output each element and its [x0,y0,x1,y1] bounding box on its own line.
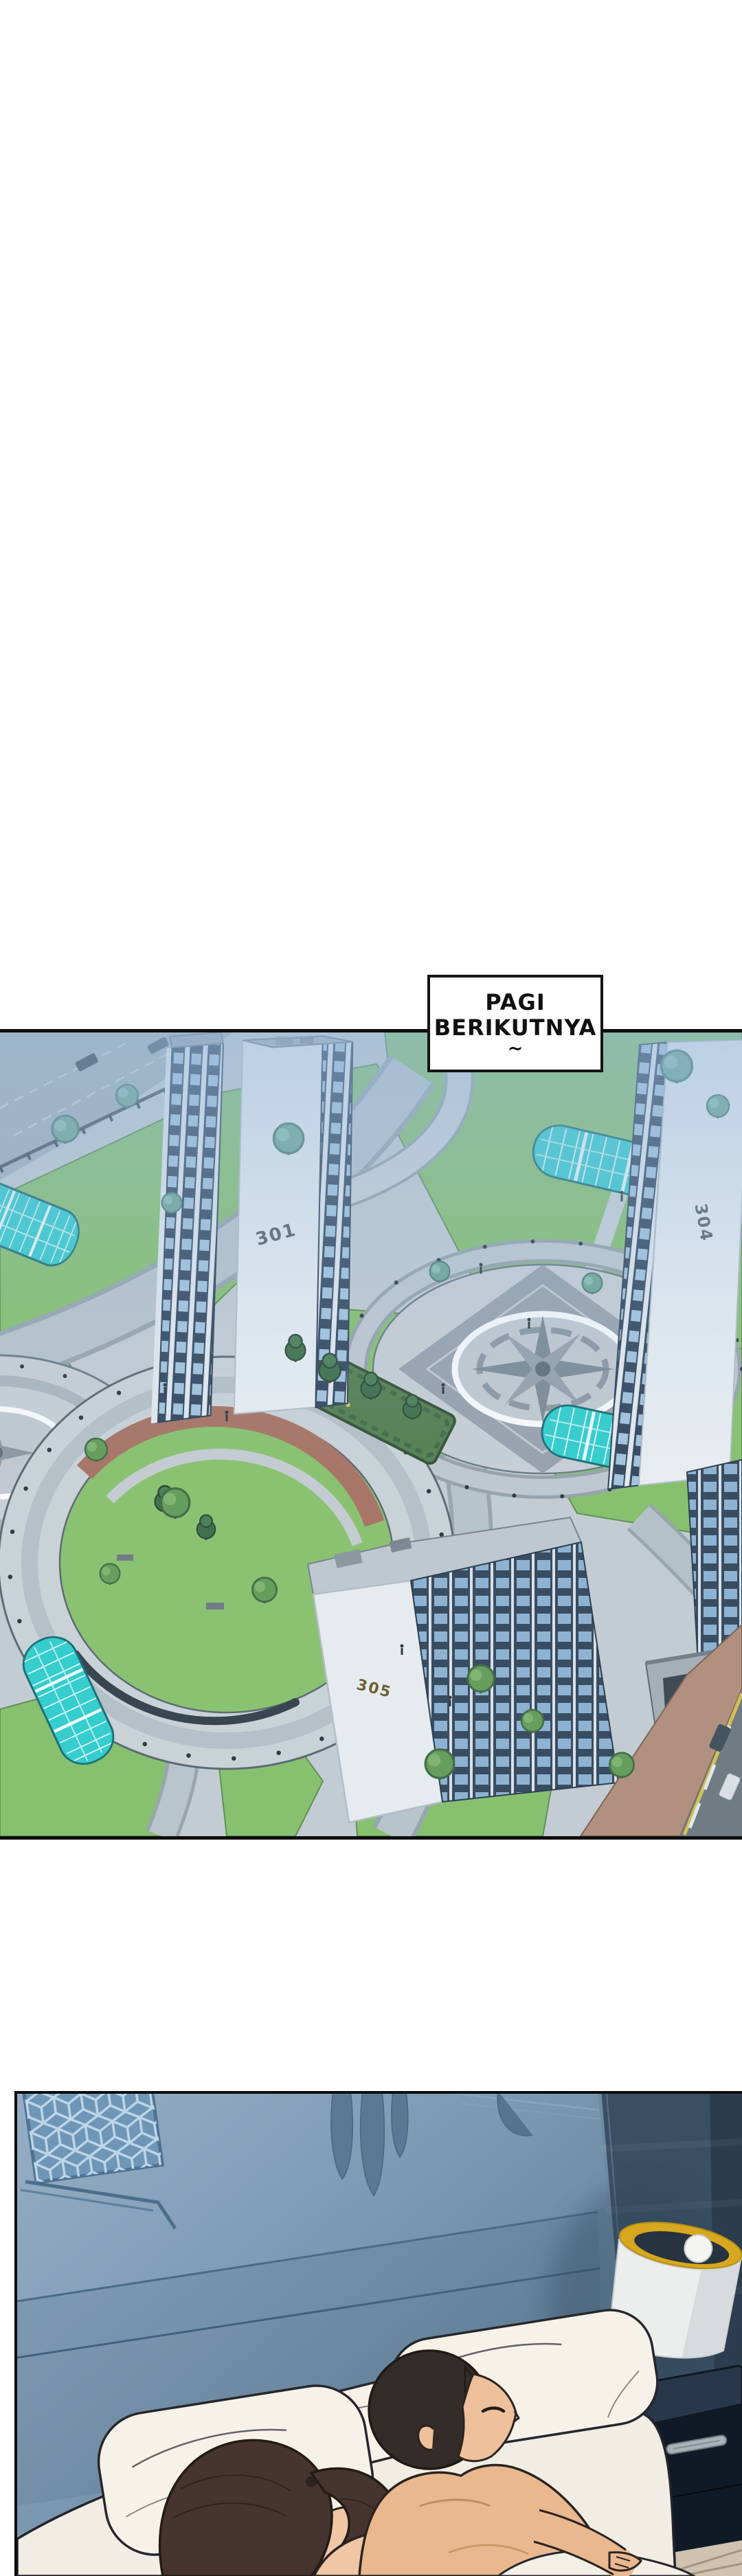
tint-overlay [0,1032,742,1836]
aerial-city-illustration: 301 304 305 [0,1032,742,1836]
aerial-city-panel: 301 304 305 [0,1029,742,1840]
caption-line-3: ~ [508,1041,524,1057]
caption-line-2: BERIKUTNYA [434,1015,597,1041]
caption-box: PAGI BERIKUTNYA ~ [427,975,603,1072]
bedroom-panel [14,2091,742,2576]
caption-line-1: PAGI [485,990,545,1015]
comic-page: PAGI BERIKUTNYA ~ [0,0,742,2576]
bedroom-illustration [17,2094,742,2576]
